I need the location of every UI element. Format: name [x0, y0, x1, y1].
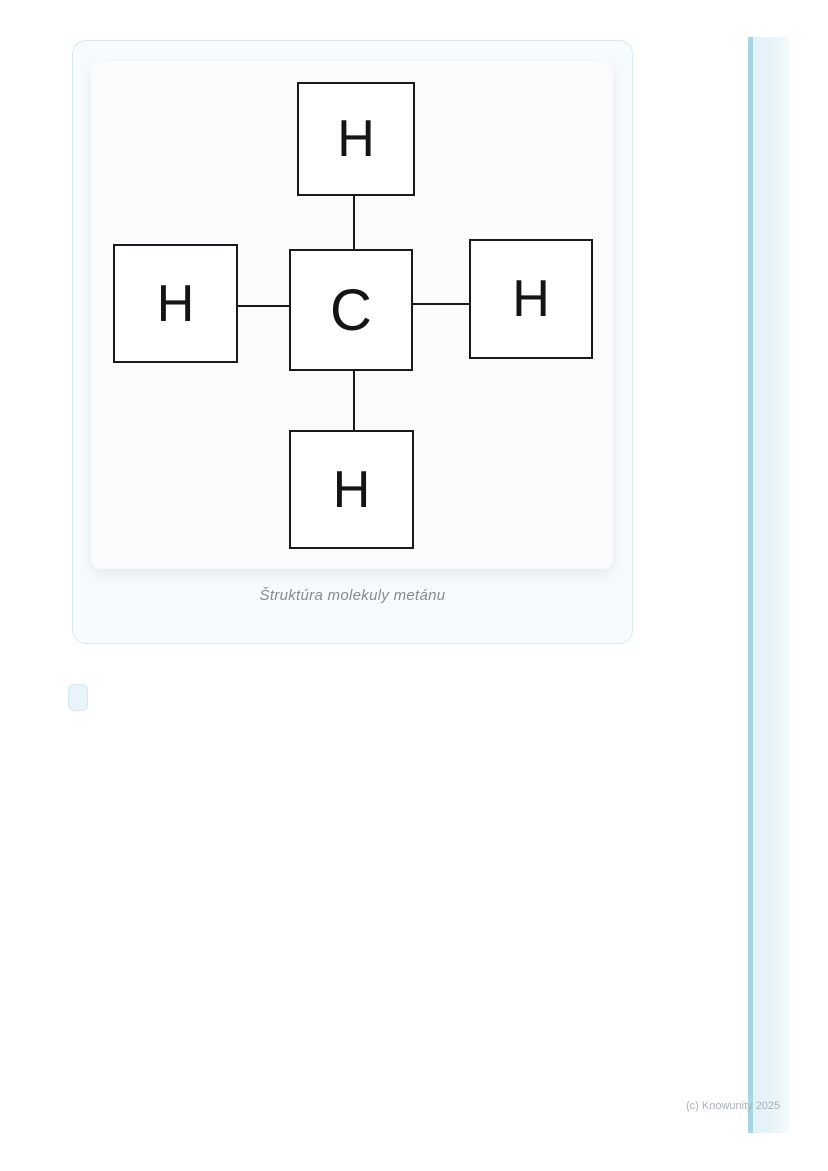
atom-symbol: H — [333, 460, 371, 520]
atom-box-c-center: C — [289, 249, 413, 371]
figure-caption: Štruktúra molekuly metánu — [73, 587, 632, 604]
atom-box-h-right: H — [469, 239, 593, 359]
bond-c-h-top — [353, 196, 355, 249]
content-placeholder — [68, 684, 88, 711]
atom-symbol: C — [330, 277, 372, 344]
atom-symbol: H — [512, 269, 550, 329]
bond-c-h-right — [413, 303, 469, 305]
scrollbar-track[interactable] — [748, 37, 789, 1133]
copyright: (c) Knowunity 2025 — [686, 1100, 780, 1112]
molecule-diagram: H H C H H — [91, 61, 613, 569]
bond-c-h-bottom — [353, 371, 355, 430]
atom-symbol: H — [337, 109, 375, 169]
atom-box-h-top: H — [297, 82, 415, 196]
atom-box-h-bottom: H — [289, 430, 414, 549]
scrollbar-thumb[interactable] — [748, 37, 753, 1133]
document-page: H H C H H Štruktúra molekuly metánu (c) … — [0, 0, 828, 1171]
figure-card: H H C H H Štruktúra molekuly metánu — [72, 40, 633, 644]
bond-c-h-left — [238, 305, 289, 307]
atom-box-h-left: H — [113, 244, 238, 363]
atom-symbol: H — [157, 274, 195, 334]
